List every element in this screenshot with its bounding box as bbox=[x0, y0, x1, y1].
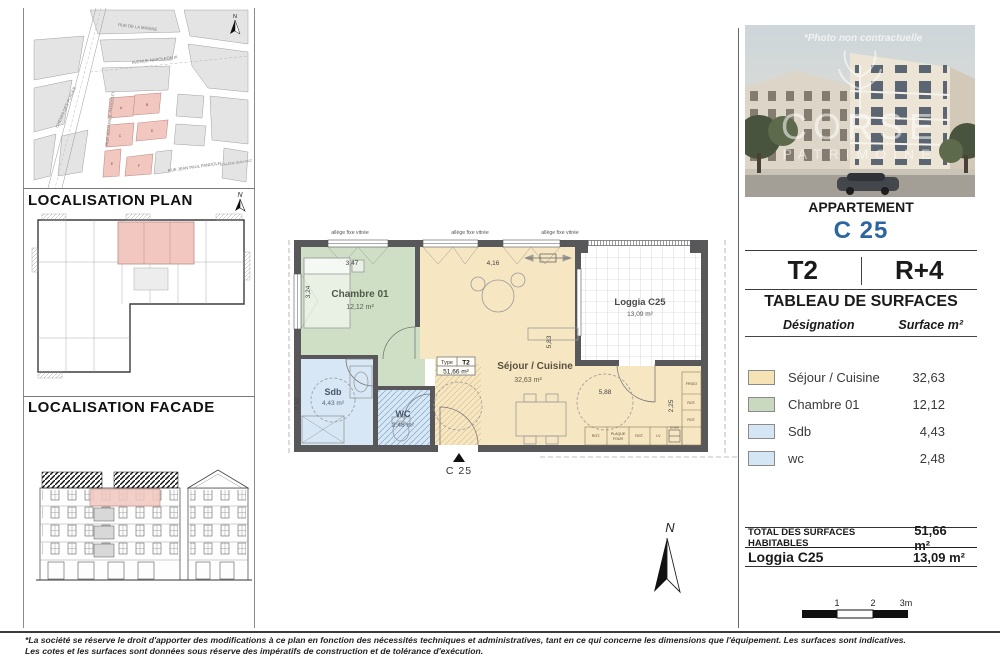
color-swatch bbox=[748, 451, 775, 466]
left-frame-line bbox=[23, 8, 24, 628]
frigo-label: FRIGO bbox=[686, 382, 698, 386]
svg-text:51,66 m²: 51,66 m² bbox=[443, 369, 469, 376]
svg-text:C 25: C 25 bbox=[446, 465, 472, 476]
loggia-label: Loggia C25 bbox=[745, 549, 823, 565]
apartment-floor: R+4 bbox=[862, 255, 978, 286]
col-surface: Surface m² bbox=[898, 318, 963, 332]
entry-hatch bbox=[435, 364, 481, 445]
gable-roof bbox=[188, 470, 248, 488]
surface-value: 4,43 bbox=[920, 424, 945, 439]
surfaces-header-row: Désignation Surface m² bbox=[745, 318, 977, 332]
surface-label: wc bbox=[788, 451, 804, 466]
dim-kitchen-h: 2,25 bbox=[668, 399, 675, 412]
windows-right bbox=[190, 490, 246, 560]
type-box: Type T2 51,66 m² bbox=[437, 357, 475, 376]
rgt-label: RGT. bbox=[687, 401, 695, 405]
sdb-label: Sdb bbox=[325, 387, 343, 397]
roof-mid bbox=[114, 472, 178, 488]
surface-label: Chambre 01 bbox=[788, 397, 860, 412]
evier-label: EVIER bbox=[670, 426, 680, 430]
panel-rule bbox=[745, 250, 977, 251]
panel-rule bbox=[745, 289, 977, 290]
surface-row: Sdb 4,43 bbox=[745, 418, 977, 445]
scale-tick-1: 1 bbox=[834, 598, 839, 608]
surface-label: Sdb bbox=[788, 424, 811, 439]
apartment-header: APPARTEMENT bbox=[745, 199, 977, 215]
wc-area: 2,48 m² bbox=[392, 422, 415, 429]
type-floor-row: T2 R+4 bbox=[745, 253, 977, 288]
plaque-label: PLAQUE bbox=[611, 432, 626, 436]
allege-labels: allège fixe vitrée allège fixe vitrée al… bbox=[331, 230, 579, 236]
svg-text:N: N bbox=[665, 520, 675, 535]
surface-value: 2,48 bbox=[920, 451, 945, 466]
localisation-facade-title: LOCALISATION FACADE bbox=[28, 399, 215, 416]
svg-text:allège fixe vitrée: allège fixe vitrée bbox=[541, 230, 579, 236]
loggia-label: Loggia C25 bbox=[614, 297, 666, 308]
svg-text:N: N bbox=[233, 14, 237, 20]
entrance-marker: C 25 bbox=[446, 453, 472, 476]
apartment-type: T2 bbox=[745, 255, 861, 286]
roof-left bbox=[42, 472, 102, 488]
color-swatch bbox=[748, 397, 775, 412]
apartment-floor-plan: FRIGO RGT. RGT. RGT. PLAQUE FOUR RGT. LV… bbox=[288, 224, 743, 476]
highlighted-unit bbox=[118, 222, 194, 264]
balconies bbox=[94, 508, 114, 557]
svg-text:N: N bbox=[237, 192, 243, 199]
chambre-area: 12,12 m² bbox=[346, 304, 374, 311]
lv-label: LV bbox=[656, 434, 661, 438]
color-swatch bbox=[748, 370, 775, 385]
panel-rule bbox=[745, 336, 977, 337]
dim-sejour-w: 4,16 bbox=[487, 260, 500, 267]
four-label: FOUR bbox=[613, 437, 624, 441]
rgt-label: RGT. bbox=[635, 434, 643, 438]
svg-text:allège fixe vitrée: allège fixe vitrée bbox=[331, 230, 369, 236]
loggia-value: 13,09 m² bbox=[913, 550, 965, 565]
floor-plan-thumbnail bbox=[30, 212, 252, 390]
svg-text:T2: T2 bbox=[462, 360, 470, 367]
north-arrow-icon: N bbox=[642, 518, 692, 600]
plan-north-arrow-icon: N bbox=[232, 189, 248, 213]
svg-text:allège fixe vitrée: allège fixe vitrée bbox=[451, 230, 489, 236]
scale-tick-2: 2 bbox=[870, 598, 875, 608]
surface-value: 12,12 bbox=[912, 397, 945, 412]
dim-kitchen-w: 5,88 bbox=[599, 389, 612, 396]
photo-caption: *Photo non contractuelle bbox=[804, 33, 923, 44]
sejour-label: Séjour / Cuisine bbox=[497, 361, 573, 372]
dim-chambre-w: 3,47 bbox=[346, 260, 359, 267]
loggia-row: Loggia C25 13,09 m² bbox=[745, 548, 977, 566]
scale-tick-3: 3m bbox=[900, 598, 913, 608]
brand-name: CORSE bbox=[781, 106, 939, 147]
sejour-area: 32,63 m² bbox=[514, 377, 542, 384]
apartment-unit: C 25 bbox=[745, 217, 977, 245]
core bbox=[134, 268, 168, 290]
facade-elevation bbox=[30, 450, 252, 605]
plan-section-divider bbox=[23, 188, 254, 189]
plan-sheet: A B C D E F RUE DE LA MARINE AVENUE NAPO… bbox=[0, 0, 1000, 660]
left-frame-line-right bbox=[254, 8, 255, 628]
wc-label: WC bbox=[396, 409, 411, 419]
loggia-railing bbox=[588, 241, 690, 246]
svg-text:F: F bbox=[138, 164, 140, 168]
highlighted-floor bbox=[90, 489, 160, 506]
dim-sejour-h: 5,83 bbox=[546, 335, 553, 348]
surface-label: Séjour / Cuisine bbox=[788, 370, 880, 385]
loggia-area: 13,09 m² bbox=[627, 311, 653, 318]
street-label: RUE JEAN PAUL PANDOLFI bbox=[167, 161, 221, 173]
surface-row: Séjour / Cuisine 32,63 bbox=[745, 364, 977, 391]
col-designation: Désignation bbox=[783, 318, 855, 332]
site-map: A B C D E F RUE DE LA MARINE AVENUE NAPO… bbox=[28, 6, 252, 188]
panel-rule bbox=[745, 566, 977, 567]
surface-row: Chambre 01 12,12 bbox=[745, 391, 977, 418]
total-row: TOTAL DES SURFACES HABITABLES 51,66 m² bbox=[745, 528, 977, 547]
brand-sub: PATRIMOINE bbox=[782, 146, 937, 162]
footer-rule bbox=[0, 631, 1000, 633]
footer-disclaimer-2: Les cotes et les surfaces sont données s… bbox=[25, 646, 985, 656]
footer-disclaimer-1: *La société se réserve le droit d'apport… bbox=[25, 635, 985, 645]
rgt-label: RGT. bbox=[687, 418, 695, 422]
localisation-plan-title: LOCALISATION PLAN bbox=[28, 192, 193, 209]
sdb-area: 4,43 m² bbox=[322, 400, 345, 407]
scale-bar: 1 2 3m bbox=[792, 597, 922, 625]
svg-text:Type: Type bbox=[441, 360, 453, 366]
closet bbox=[378, 359, 425, 390]
building-photo: *Photo non contractuelle CORSE PATRIMOIN… bbox=[745, 25, 975, 197]
surface-value: 32,63 bbox=[912, 370, 945, 385]
surfaces-title: TABLEAU DE SURFACES bbox=[745, 293, 977, 311]
dim-sdb-h: 2,52 bbox=[294, 397, 301, 410]
total-label: TOTAL DES SURFACES HABITABLES bbox=[745, 527, 914, 549]
rgt-label: RGT. bbox=[592, 434, 600, 438]
surface-row: wc 2,48 bbox=[745, 445, 977, 472]
facade-section-divider bbox=[23, 396, 254, 397]
dim-chambre-h: 3,24 bbox=[305, 285, 312, 298]
chambre-label: Chambre 01 bbox=[331, 289, 389, 300]
color-swatch bbox=[748, 424, 775, 439]
